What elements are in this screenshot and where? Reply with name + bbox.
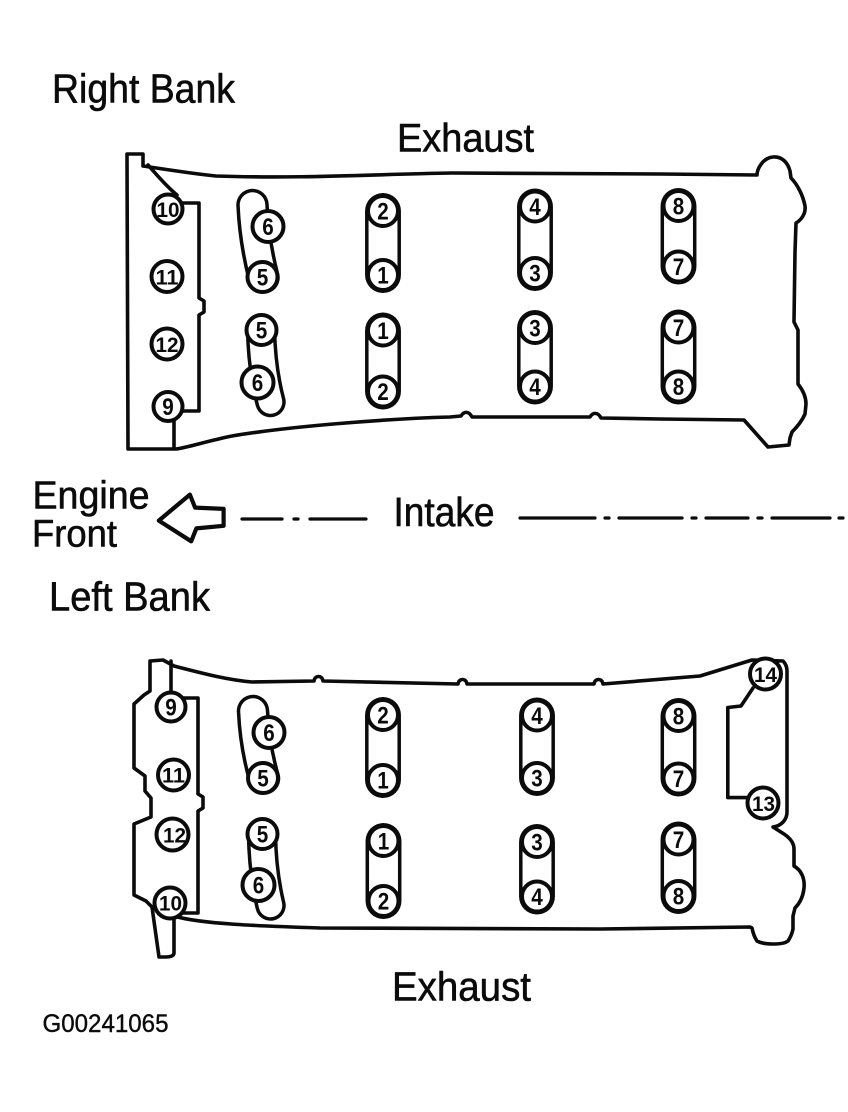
- svg-text:4: 4: [531, 703, 543, 730]
- svg-text:5: 5: [257, 822, 269, 849]
- svg-text:3: 3: [529, 316, 541, 343]
- svg-text:6: 6: [263, 720, 275, 747]
- svg-text:7: 7: [673, 827, 685, 854]
- svg-text:5: 5: [257, 766, 269, 793]
- svg-text:8: 8: [673, 884, 685, 911]
- svg-text:4: 4: [529, 194, 541, 221]
- svg-text:Intake: Intake: [394, 489, 495, 535]
- svg-text:7: 7: [673, 766, 685, 793]
- svg-text:11: 11: [162, 764, 185, 788]
- svg-text:14: 14: [754, 663, 777, 687]
- svg-text:11: 11: [156, 266, 179, 290]
- svg-text:12: 12: [156, 333, 179, 357]
- svg-text:10: 10: [157, 198, 180, 222]
- svg-text:4: 4: [529, 374, 541, 401]
- svg-text:9: 9: [165, 695, 177, 722]
- svg-text:1: 1: [378, 829, 390, 856]
- svg-text:6: 6: [253, 873, 265, 900]
- svg-text:2: 2: [378, 889, 390, 916]
- svg-text:6: 6: [252, 370, 264, 397]
- svg-text:8: 8: [673, 704, 685, 731]
- svg-text:5: 5: [257, 265, 269, 292]
- svg-text:13: 13: [752, 792, 775, 816]
- svg-text:3: 3: [531, 830, 543, 857]
- svg-text:12: 12: [163, 824, 186, 848]
- svg-text:Exhaust: Exhaust: [397, 117, 534, 161]
- svg-text:1: 1: [377, 318, 389, 345]
- svg-text:6: 6: [262, 214, 274, 241]
- svg-text:2: 2: [377, 199, 389, 226]
- svg-text:8: 8: [673, 374, 685, 401]
- svg-text:4: 4: [531, 884, 543, 911]
- svg-text:Exhaust: Exhaust: [392, 964, 532, 1010]
- svg-text:Front: Front: [32, 514, 117, 556]
- svg-text:1: 1: [377, 263, 389, 290]
- svg-text:7: 7: [673, 315, 685, 342]
- svg-text:2: 2: [377, 703, 389, 730]
- svg-text:3: 3: [531, 766, 543, 793]
- svg-text:G00241065: G00241065: [43, 1010, 169, 1038]
- svg-text:3: 3: [529, 261, 541, 288]
- svg-text:1: 1: [377, 768, 389, 795]
- svg-text:2: 2: [377, 379, 389, 406]
- svg-text:10: 10: [159, 892, 182, 916]
- svg-text:Engine: Engine: [33, 475, 150, 518]
- svg-text:8: 8: [673, 194, 685, 221]
- svg-text:5: 5: [256, 318, 268, 345]
- svg-text:Left Bank: Left Bank: [49, 574, 210, 620]
- svg-text:9: 9: [162, 394, 174, 421]
- svg-text:Right Bank: Right Bank: [52, 66, 235, 112]
- svg-text:7: 7: [673, 254, 685, 281]
